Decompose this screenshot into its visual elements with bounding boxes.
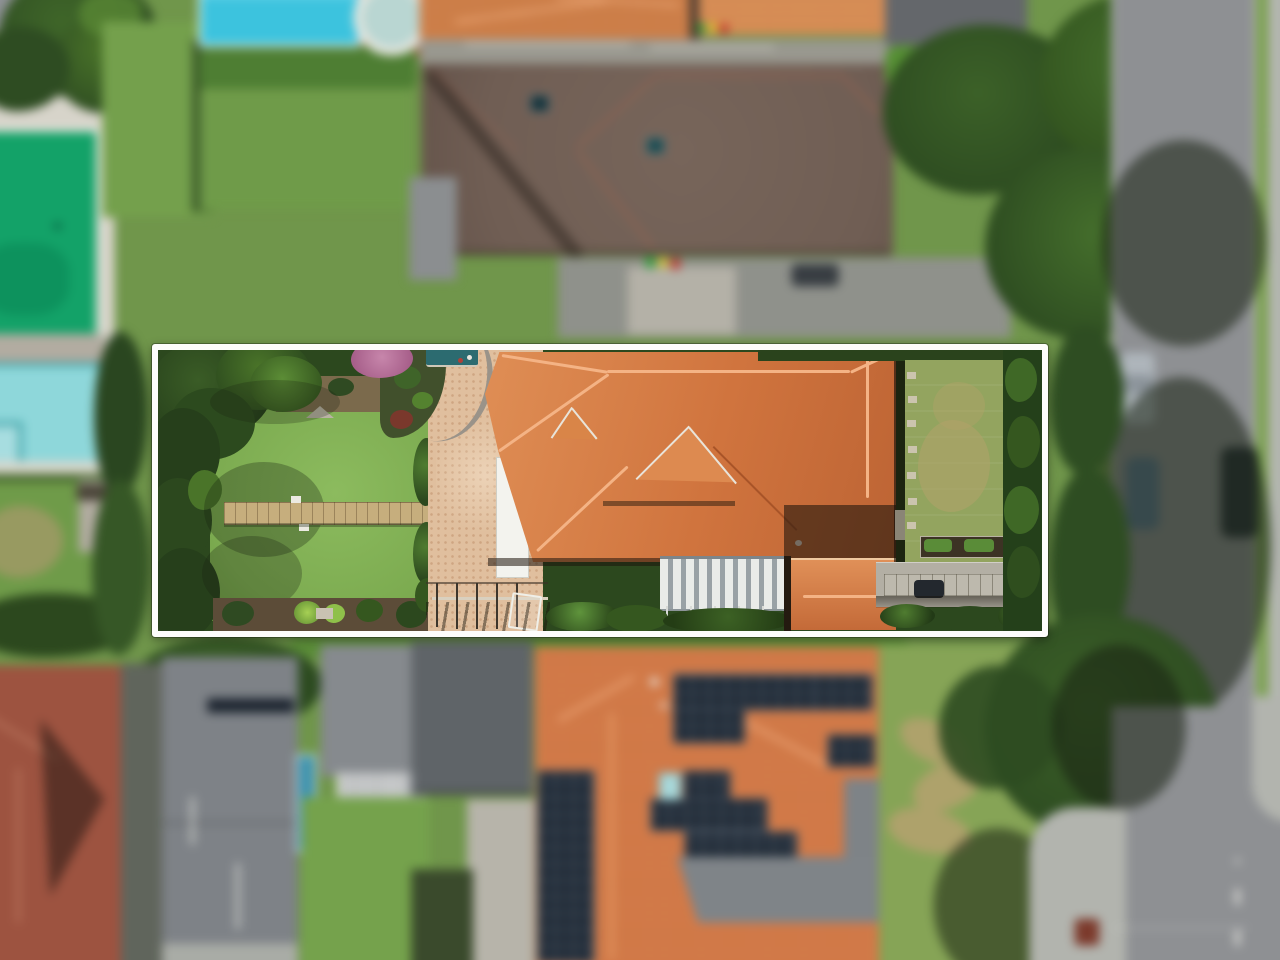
skylight (646, 137, 665, 155)
tree-canopy (94, 332, 148, 497)
green-pool-shade (0, 243, 69, 315)
solar-strip (207, 698, 294, 712)
roof-step-line (162, 822, 298, 824)
stepping-stone (908, 446, 917, 453)
hedge (880, 604, 935, 628)
bin-yellow (659, 256, 668, 268)
aerial-photo (0, 0, 1280, 960)
hedge (606, 605, 668, 631)
solar-array (537, 770, 595, 960)
solar-array (650, 798, 767, 831)
roof-gap-shadow (784, 505, 896, 560)
roof-gap-shadow (784, 556, 791, 631)
bin-yellow (708, 23, 717, 33)
skylight (530, 95, 550, 113)
stepping-stone (907, 472, 916, 479)
garden-pot (467, 355, 472, 360)
timber-walkway (224, 502, 430, 525)
roof-vent (661, 702, 667, 708)
skylight (659, 773, 682, 801)
pool-coping (0, 461, 113, 473)
solar-array (673, 674, 873, 711)
featured-property (158, 350, 1042, 631)
road-dashed-line (1235, 859, 1239, 960)
hedge-row (964, 539, 994, 552)
fence-line (465, 43, 630, 45)
louvre-pergola (660, 556, 788, 611)
roof-vent (650, 678, 658, 686)
roof-ridge (17, 768, 20, 923)
roof-ridge (803, 595, 883, 598)
fence-line (650, 46, 774, 48)
roof-ridge (607, 370, 850, 373)
solar-array (684, 831, 797, 860)
grey-shed-roof (409, 177, 456, 280)
property-highlight-frame (152, 344, 1048, 637)
stepping-stone (316, 608, 333, 619)
hedge (940, 606, 1002, 631)
solar-array (683, 770, 730, 800)
roof-pipe (236, 863, 239, 929)
roof-ridge-red (658, 74, 843, 76)
pergola-shadow (426, 602, 550, 631)
solar-array (827, 734, 874, 767)
bin-green (697, 23, 706, 33)
side-drive (121, 663, 164, 960)
open-pergola-beam (426, 582, 548, 584)
hedge (663, 608, 793, 631)
stepping-stone (907, 420, 916, 427)
grey-roof-wing (677, 857, 887, 923)
tree-shadow (1101, 140, 1266, 346)
garden-pot (458, 358, 463, 363)
tall-grey-roof (411, 641, 533, 796)
bin-green (645, 256, 655, 268)
stepping-stone (907, 522, 916, 529)
tree-shadow (1052, 645, 1186, 810)
carport-roof (627, 266, 737, 336)
blue-pool (198, 0, 361, 47)
eave-shadow (411, 791, 533, 795)
road-seam (1114, 927, 1248, 929)
stepping-stone (908, 396, 917, 403)
tree-canopy (92, 480, 150, 655)
stepping-stone (908, 498, 917, 505)
red-patch (1075, 919, 1100, 946)
solar-array (673, 709, 745, 744)
neighbour-orange-roof (699, 0, 905, 35)
eave-shadow (446, 251, 889, 255)
eave-step-shadow (603, 501, 735, 506)
parked-car (791, 264, 838, 287)
pool-drain (53, 223, 62, 230)
walkway-shadow (224, 523, 430, 527)
bin-red (671, 258, 680, 270)
roof-ridge-vertical (866, 356, 869, 498)
garden-dark (411, 869, 473, 960)
walkway-marker (291, 496, 301, 503)
roof-ridge (610, 713, 613, 960)
stepping-stone (907, 372, 916, 379)
bin-red (719, 24, 728, 34)
roof-pipe (191, 797, 194, 844)
garden-path (467, 799, 535, 960)
hedge-row (924, 539, 952, 552)
courtyard-paving (558, 258, 1011, 338)
tree-shadow (210, 380, 340, 424)
lawn (200, 89, 411, 211)
lower-roof (162, 944, 298, 960)
